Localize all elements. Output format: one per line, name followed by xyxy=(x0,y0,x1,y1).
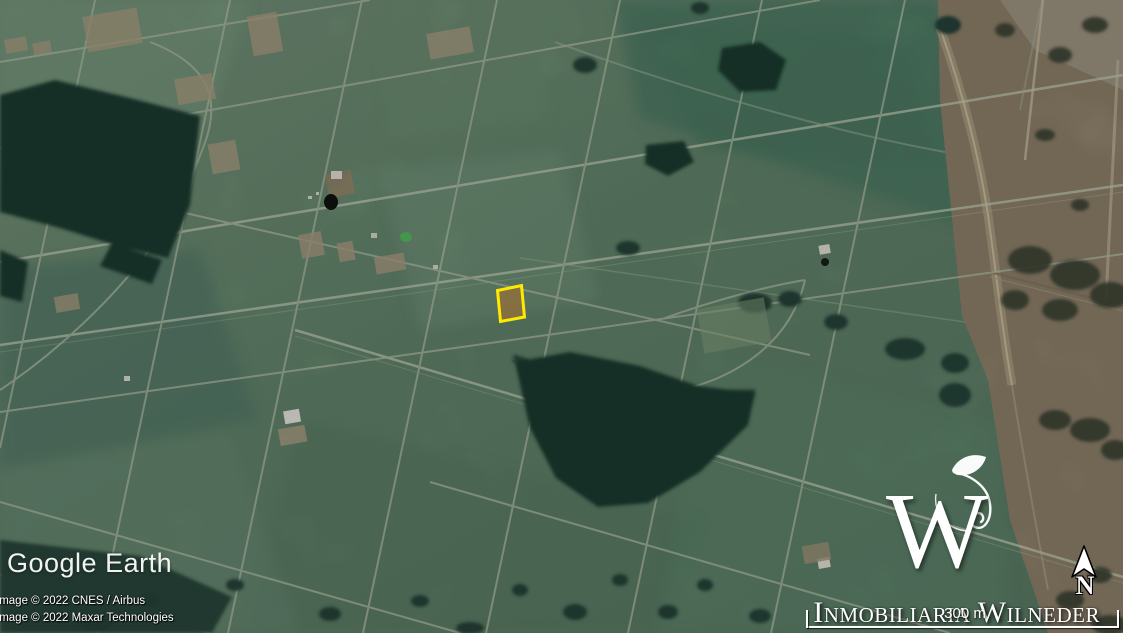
google-earth-viewport[interactable]: Google Earth Image © 2022 CNES / Airbus … xyxy=(0,0,1123,633)
imagery-copyright: Image © 2022 CNES / Airbus Image © 2022 … xyxy=(0,593,174,626)
north-label: N xyxy=(1066,571,1104,601)
scale-bar-left-tick xyxy=(806,610,808,628)
brand-w-logo: W xyxy=(886,478,988,586)
scale-bar-label: 300 m xyxy=(935,605,995,622)
scale-bar-right-tick xyxy=(1117,610,1119,628)
scale-bar-line xyxy=(806,626,1119,628)
copyright-line-2: Image © 2022 Maxar Technologies xyxy=(0,610,174,627)
highlighted-plot-outline[interactable] xyxy=(498,286,525,322)
google-earth-watermark: Google Earth xyxy=(7,548,172,579)
copyright-line-1: Image © 2022 CNES / Airbus xyxy=(0,593,174,610)
